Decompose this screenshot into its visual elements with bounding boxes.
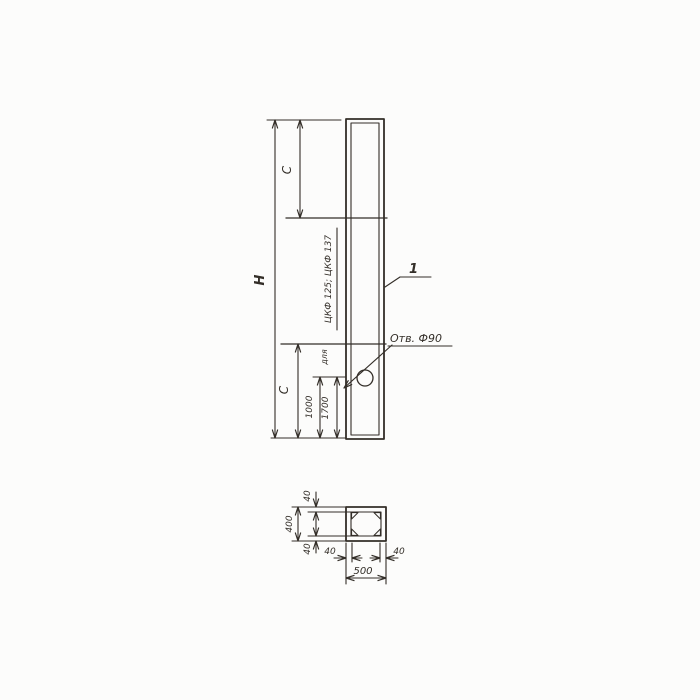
hole-label: Отв. Ф90 bbox=[390, 332, 442, 345]
dim-section-height-400: 400 bbox=[285, 507, 301, 541]
dim-section-width-500: 500 bbox=[346, 566, 386, 581]
column-inner-outline bbox=[351, 123, 379, 435]
column-body bbox=[346, 119, 384, 439]
corner-fillet-bottom-right bbox=[374, 529, 380, 535]
dim-label-h: H bbox=[253, 274, 268, 285]
dim-c-bottom: C bbox=[277, 344, 301, 438]
dim-label-1000: 1000 bbox=[305, 395, 315, 418]
hole-callout: Отв. Ф90 bbox=[344, 332, 452, 388]
dim-label-1700: 1700 bbox=[321, 396, 331, 419]
corner-fillet-top-left bbox=[352, 513, 358, 519]
part-mark: 1 bbox=[385, 262, 431, 287]
dim-wall-right-40: 40 bbox=[370, 547, 405, 561]
dim-label-40-bottom: 40 bbox=[303, 543, 313, 555]
dim-wall-left-40: 40 bbox=[324, 547, 362, 561]
dim-label-400: 400 bbox=[285, 515, 295, 532]
corner-fillet-bottom-left bbox=[352, 529, 358, 535]
part-mark-leader bbox=[385, 277, 400, 287]
dim-hole-offset-1000: 1000 bbox=[305, 377, 323, 438]
elevation-view: H C C 1000 1700 bbox=[253, 119, 452, 439]
dim-hole-offset-1700: 1700 bbox=[321, 377, 340, 438]
dim-label-c-top: C bbox=[280, 165, 294, 174]
section-body bbox=[346, 507, 386, 541]
dim-label-c-bottom: C bbox=[277, 385, 291, 394]
series-note: ЦКФ 125; ЦКФ 137 для bbox=[320, 228, 337, 366]
dim-label-40-right: 40 bbox=[393, 547, 405, 557]
column-outer-outline bbox=[346, 119, 384, 439]
section-view: 400 40 40 40 bbox=[285, 490, 405, 584]
note-prefix-text: для bbox=[320, 349, 329, 366]
column-segment-lines bbox=[281, 218, 387, 344]
corner-fillet-top-right bbox=[374, 513, 380, 519]
note-series-text: ЦКФ 125; ЦКФ 137 bbox=[324, 235, 334, 323]
dim-overall-height: H bbox=[253, 120, 278, 438]
dim-wall-bottom-40: 40 bbox=[303, 524, 319, 555]
dim-label-40-left: 40 bbox=[324, 547, 336, 557]
technical-drawing: H C C 1000 1700 bbox=[0, 0, 700, 700]
part-mark-label: 1 bbox=[409, 262, 418, 277]
dim-label-500: 500 bbox=[353, 566, 372, 577]
dim-c-top: C bbox=[280, 120, 303, 218]
dim-label-40-top: 40 bbox=[303, 490, 313, 502]
hole-circle bbox=[357, 370, 373, 386]
